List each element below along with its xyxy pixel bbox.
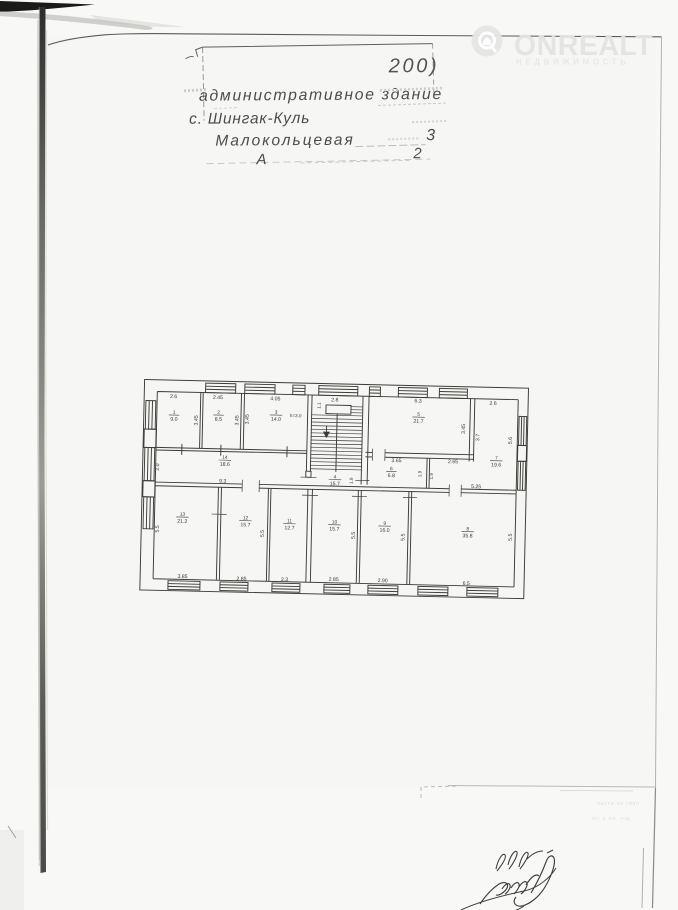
svg-text:Малокольцевая: Малокольцевая bbox=[215, 132, 355, 150]
svg-text:200): 200) bbox=[388, 55, 440, 77]
svg-text:6.5: 6.5 bbox=[463, 581, 470, 587]
svg-text:6.8: 6.8 bbox=[388, 473, 395, 479]
svg-text:16.0: 16.0 bbox=[379, 528, 389, 534]
svg-text:НЕДВИЖИМОСТЬ: НЕДВИЖИМОСТЬ bbox=[516, 58, 630, 67]
svg-text:2.6: 2.6 bbox=[170, 394, 177, 400]
svg-text:1.9: 1.9 bbox=[417, 470, 422, 477]
svg-text:3.7: 3.7 bbox=[475, 434, 481, 441]
svg-text:2: 2 bbox=[412, 145, 422, 162]
svg-text:15.7: 15.7 bbox=[330, 481, 340, 487]
svg-text:2.85: 2.85 bbox=[329, 577, 339, 583]
svg-text:15.7: 15.7 bbox=[240, 522, 250, 528]
svg-text:12.7: 12.7 bbox=[284, 525, 294, 531]
svg-text:5.5: 5.5 bbox=[400, 533, 406, 540]
svg-text:3.45: 3.45 bbox=[194, 415, 200, 425]
svg-text:3.85: 3.85 bbox=[177, 574, 187, 580]
svg-text:части по гяпп: части по гяпп bbox=[597, 801, 640, 807]
svg-text:административное здание: административное здание bbox=[199, 86, 443, 105]
svg-text:2.3: 2.3 bbox=[281, 577, 288, 583]
svg-text:2.45: 2.45 bbox=[213, 395, 223, 401]
svg-text:А: А bbox=[255, 151, 266, 168]
svg-text:35.8: 35.8 bbox=[462, 533, 472, 539]
svg-text:4.05: 4.05 bbox=[270, 396, 280, 402]
svg-text:5.5: 5.5 bbox=[260, 530, 266, 537]
svg-text:14.0: 14.0 bbox=[271, 417, 281, 423]
svg-text:3.65: 3.65 bbox=[391, 458, 401, 464]
svg-text:2.0: 2.0 bbox=[155, 463, 161, 470]
svg-text:3.45: 3.45 bbox=[461, 424, 467, 434]
svg-text:15.7: 15.7 bbox=[329, 526, 339, 532]
svg-text:9.3: 9.3 bbox=[219, 479, 226, 485]
svg-text:h=3.0: h=3.0 bbox=[290, 413, 302, 418]
svg-text:2.90: 2.90 bbox=[378, 578, 388, 584]
svg-text:21.2: 21.2 bbox=[177, 519, 187, 525]
svg-text:с. Шингак-Куль: с. Шингак-Куль bbox=[189, 110, 310, 128]
svg-text:9.0: 9.0 bbox=[170, 417, 177, 423]
svg-text:3: 3 bbox=[426, 127, 435, 144]
svg-text:1.9: 1.9 bbox=[429, 473, 434, 480]
svg-text:2.65: 2.65 bbox=[448, 459, 458, 465]
svg-text:5.6: 5.6 bbox=[508, 437, 514, 444]
svg-text:5.5: 5.5 bbox=[351, 532, 357, 539]
svg-text:3.45: 3.45 bbox=[234, 415, 240, 425]
svg-text:3.45: 3.45 bbox=[245, 414, 251, 424]
svg-text:2.8: 2.8 bbox=[331, 397, 338, 403]
svg-text:2.85: 2.85 bbox=[236, 576, 246, 582]
svg-text:1.1: 1.1 bbox=[316, 402, 321, 409]
svg-text:5.5: 5.5 bbox=[508, 533, 514, 540]
svg-text:21.7: 21.7 bbox=[413, 419, 423, 425]
svg-text:5.5: 5.5 bbox=[155, 525, 161, 532]
svg-text:6.3: 6.3 bbox=[414, 398, 421, 404]
svg-text:1.9: 1.9 bbox=[349, 477, 354, 484]
svg-text:18.6: 18.6 bbox=[220, 462, 230, 468]
svg-text:19.6: 19.6 bbox=[491, 462, 501, 468]
svg-text:5.25: 5.25 bbox=[471, 484, 481, 490]
svg-text:2.6: 2.6 bbox=[489, 401, 496, 407]
svg-text:от; к пл. гчд: от; к пл. гчд bbox=[592, 816, 630, 822]
svg-text:8.5: 8.5 bbox=[215, 417, 222, 423]
